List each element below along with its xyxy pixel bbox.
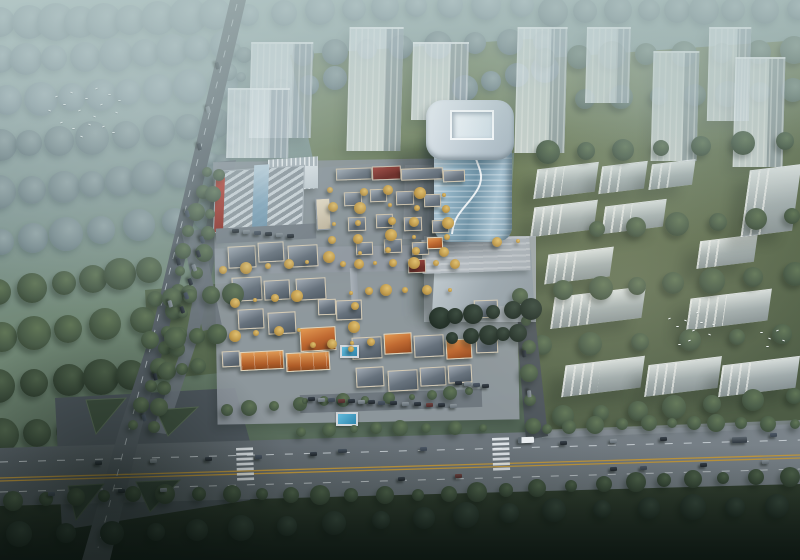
bird: [760, 332, 763, 333]
bird: [676, 326, 679, 327]
bird: [55, 95, 58, 97]
aerial-masterplan-rendering: [0, 0, 800, 560]
bird: [776, 329, 779, 331]
bird: [782, 339, 785, 341]
bird: [100, 103, 103, 105]
bird: [80, 135, 83, 137]
bird: [48, 109, 51, 111]
bird: [696, 311, 699, 313]
bird: [700, 322, 703, 323]
bird: [118, 100, 121, 101]
bird-flocks: [0, 0, 800, 560]
bird: [85, 98, 88, 99]
bird: [115, 111, 118, 113]
bird: [60, 121, 63, 123]
bird: [708, 333, 711, 335]
bird: [692, 329, 695, 331]
bird: [63, 104, 66, 105]
bird: [684, 319, 687, 321]
bird: [88, 123, 91, 125]
bird: [102, 125, 105, 127]
bird: [668, 317, 671, 319]
bird: [108, 94, 111, 95]
bird: [95, 87, 98, 89]
bird: [70, 91, 73, 93]
bird: [768, 337, 771, 339]
bird: [93, 115, 96, 117]
bird: [766, 346, 769, 347]
bird: [72, 128, 75, 129]
bird: [112, 132, 115, 133]
bird: [78, 109, 81, 111]
bird: [712, 323, 715, 325]
bird: [688, 339, 691, 341]
bird: [678, 344, 681, 345]
